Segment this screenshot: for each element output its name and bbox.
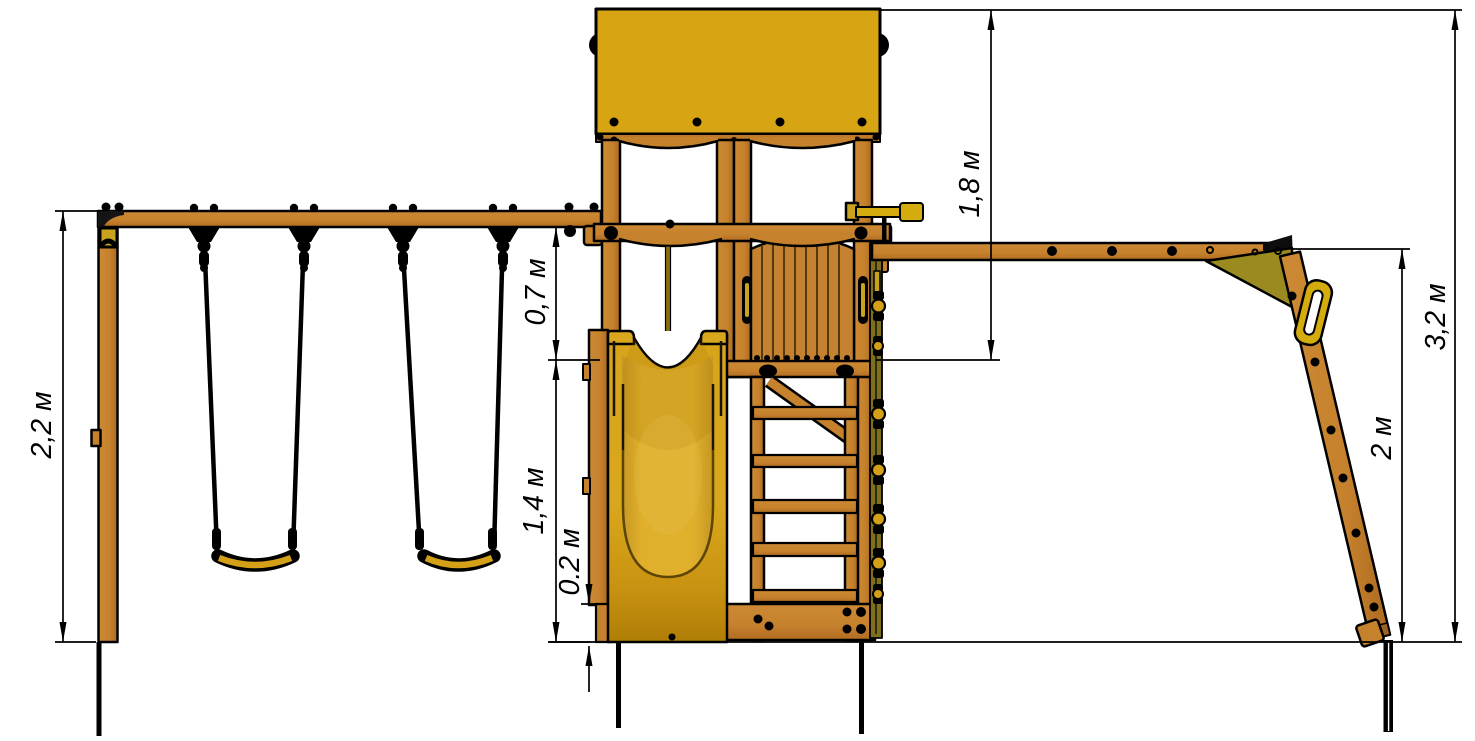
svg-text:1,8 м: 1,8 м	[954, 150, 986, 217]
svg-text:0,7 м: 0,7 м	[520, 258, 552, 325]
svg-text:0.2 м: 0.2 м	[554, 528, 586, 595]
svg-text:2,2 м: 2,2 м	[26, 391, 58, 459]
svg-text:3,2 м: 3,2 м	[1420, 283, 1452, 350]
svg-text:2 м: 2 м	[1366, 416, 1398, 460]
svg-text:1,4 м: 1,4 м	[518, 467, 550, 534]
